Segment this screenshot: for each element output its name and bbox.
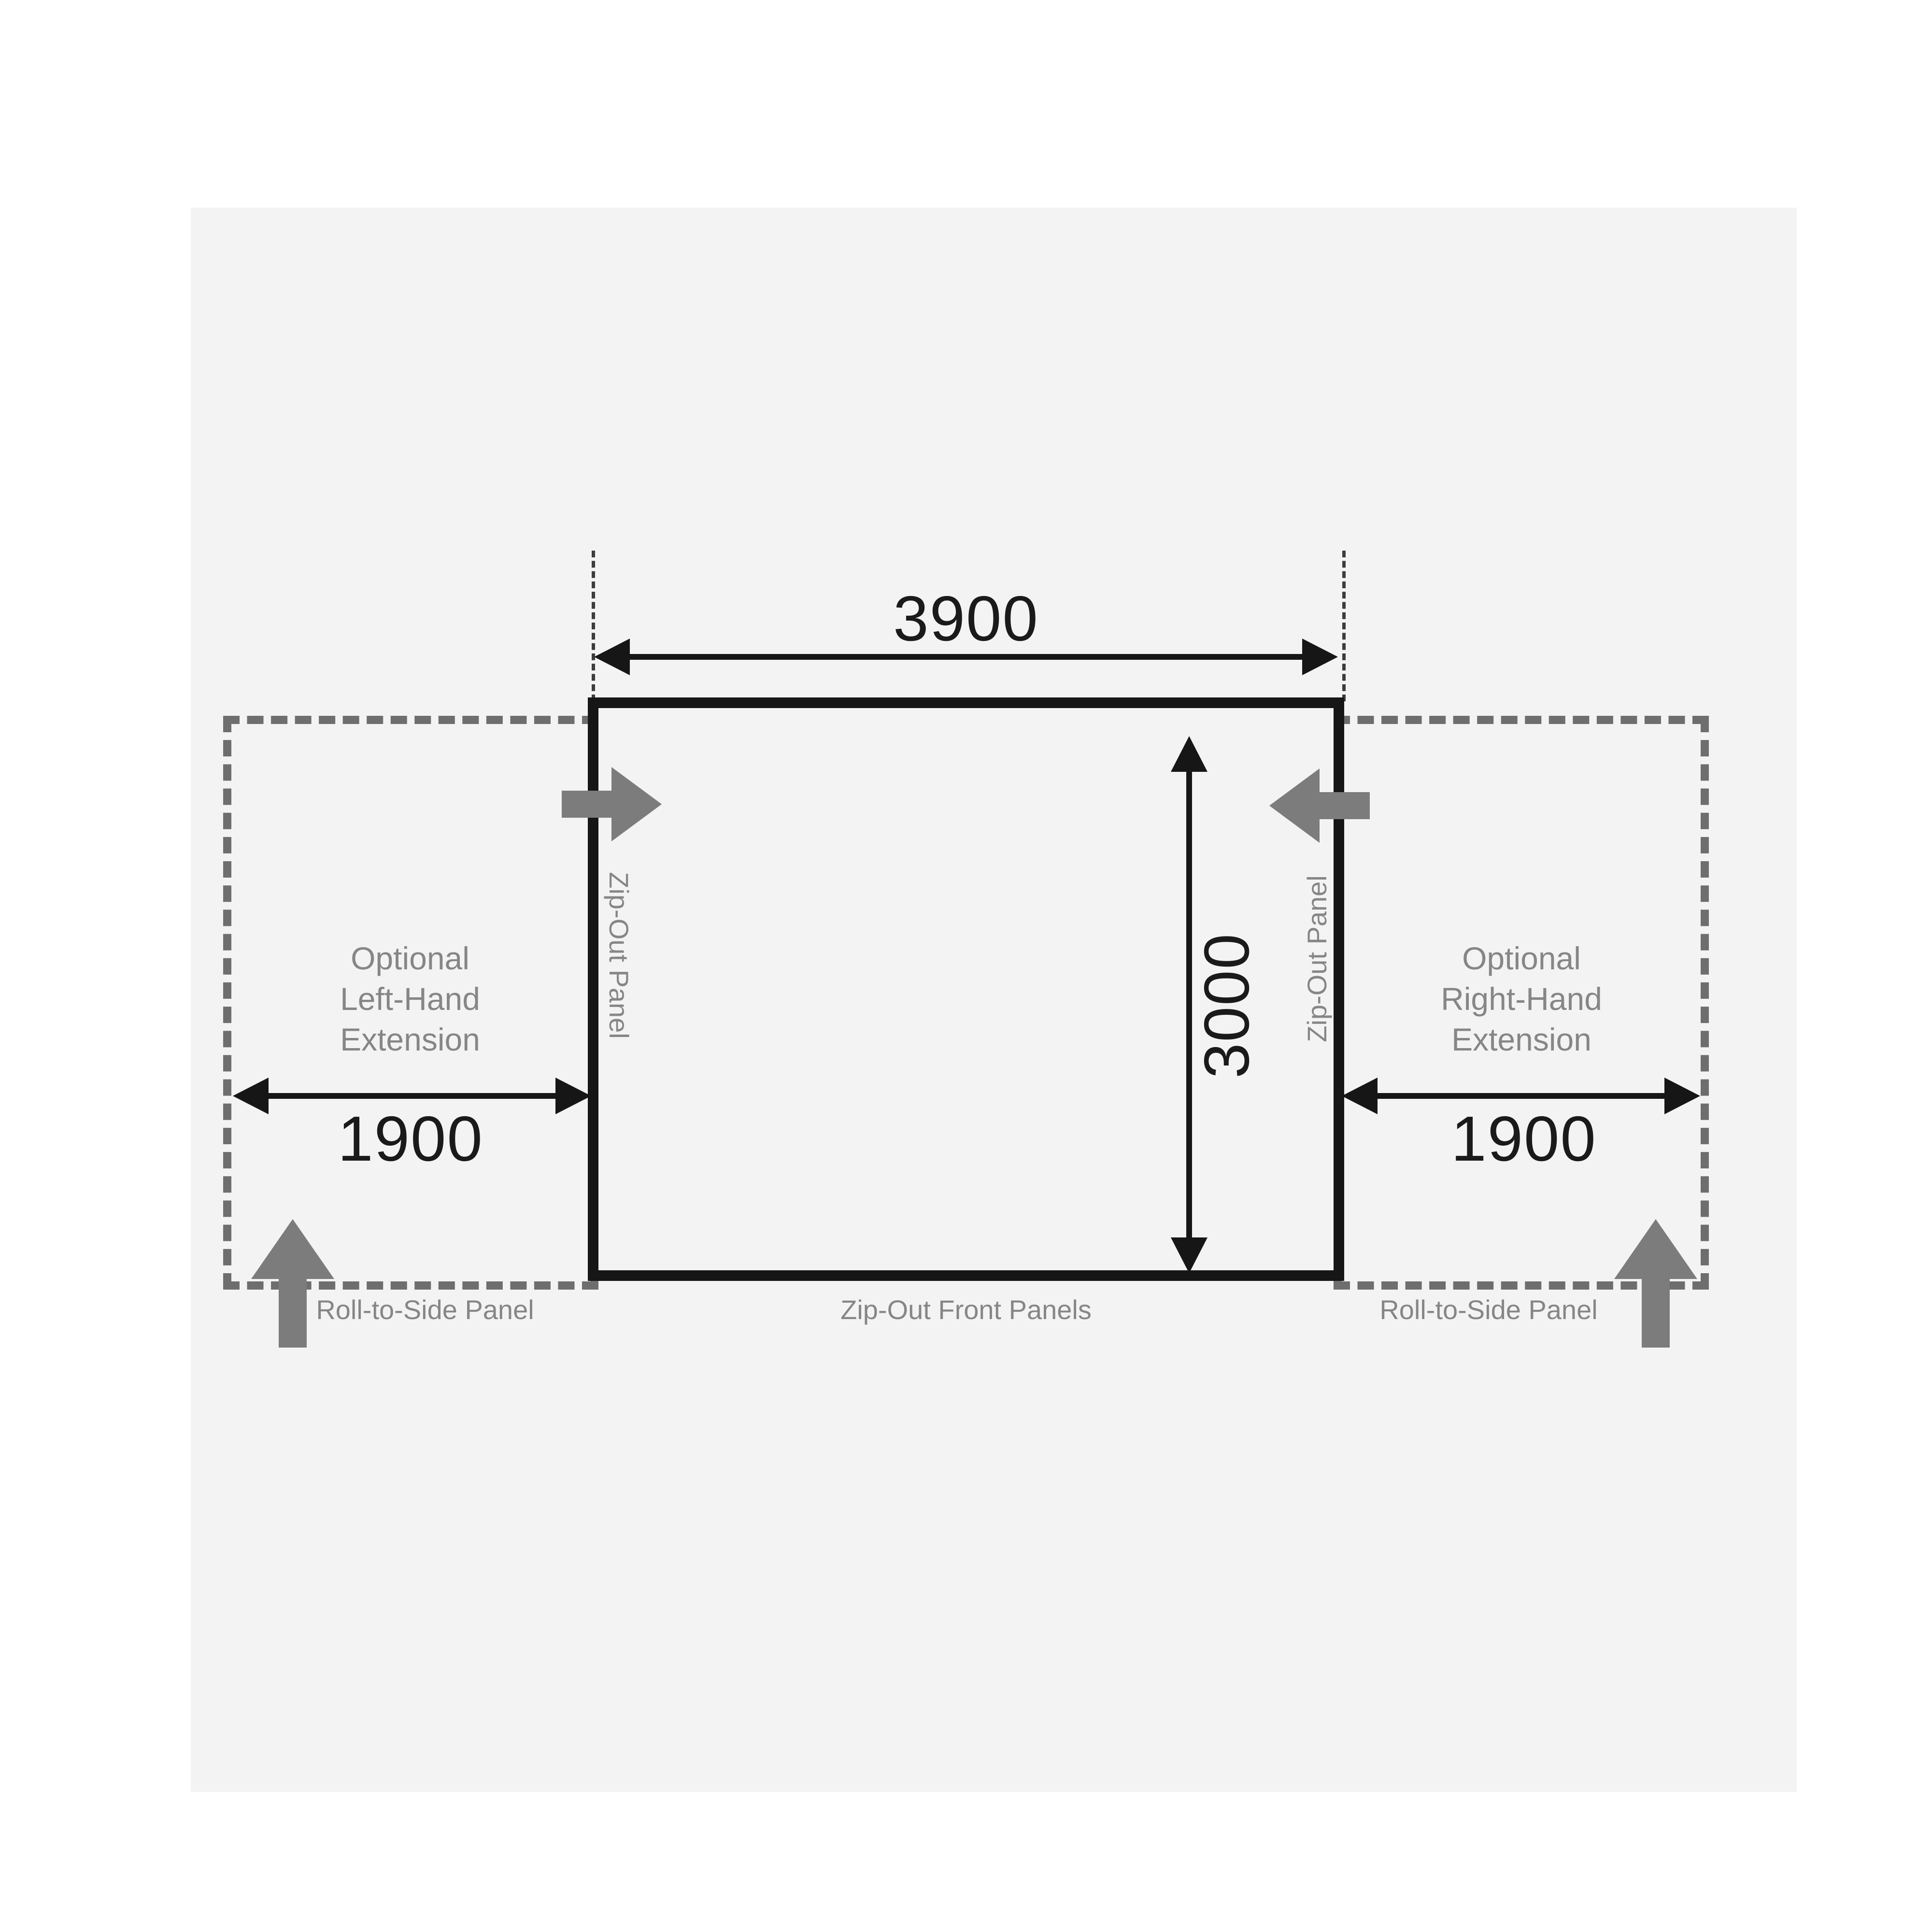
arrowhead-left-icon (233, 1078, 269, 1114)
roll-to-side-panel-label-left: Roll-to-Side Panel (290, 1293, 560, 1326)
right-extension-dimension-label: 1900 (1379, 1102, 1669, 1175)
arrow-right-icon (611, 767, 662, 841)
left-extension-dimension-label: 1900 (266, 1102, 555, 1175)
zip-out-panel-label-left: Zip-Out Panel (602, 835, 635, 1076)
projection-line-right (1342, 551, 1346, 701)
height-dimension-label: 3000 (1193, 861, 1261, 1151)
projection-line-left (592, 551, 595, 701)
right-extension-dimension-line (1375, 1093, 1669, 1099)
left-extension-dimension-line (265, 1093, 559, 1099)
zip-out-front-panels-label: Zip-Out Front Panels (821, 1293, 1111, 1326)
arrowhead-right-icon (1302, 639, 1338, 675)
width-dimension-line (626, 654, 1306, 660)
zip-out-panel-label-right: Zip-Out Panel (1301, 838, 1334, 1080)
arrowhead-left-icon (594, 639, 630, 675)
dimension-diagram: 3900 3000 1900 1900 Optional Left-Hand E… (0, 0, 1932, 1932)
arrow-up-icon (251, 1219, 334, 1279)
arrowhead-down-icon (1171, 1237, 1207, 1273)
width-dimension-label: 3900 (773, 582, 1159, 655)
arrow-up-icon (1614, 1219, 1697, 1279)
arrow-left-icon (1318, 792, 1370, 819)
left-extension-title: Optional Left-Hand Extension (265, 938, 555, 1060)
arrowhead-right-icon (555, 1078, 591, 1114)
right-extension-title: Optional Right-Hand Extension (1377, 938, 1666, 1060)
arrow-right-icon (562, 791, 614, 818)
arrow-left-icon (1269, 768, 1320, 843)
arrowhead-left-icon (1342, 1078, 1378, 1114)
arrowhead-up-icon (1171, 736, 1207, 772)
arrow-up-icon (1642, 1277, 1670, 1348)
roll-to-side-panel-label-right: Roll-to-Side Panel (1353, 1293, 1624, 1326)
arrowhead-right-icon (1664, 1078, 1700, 1114)
